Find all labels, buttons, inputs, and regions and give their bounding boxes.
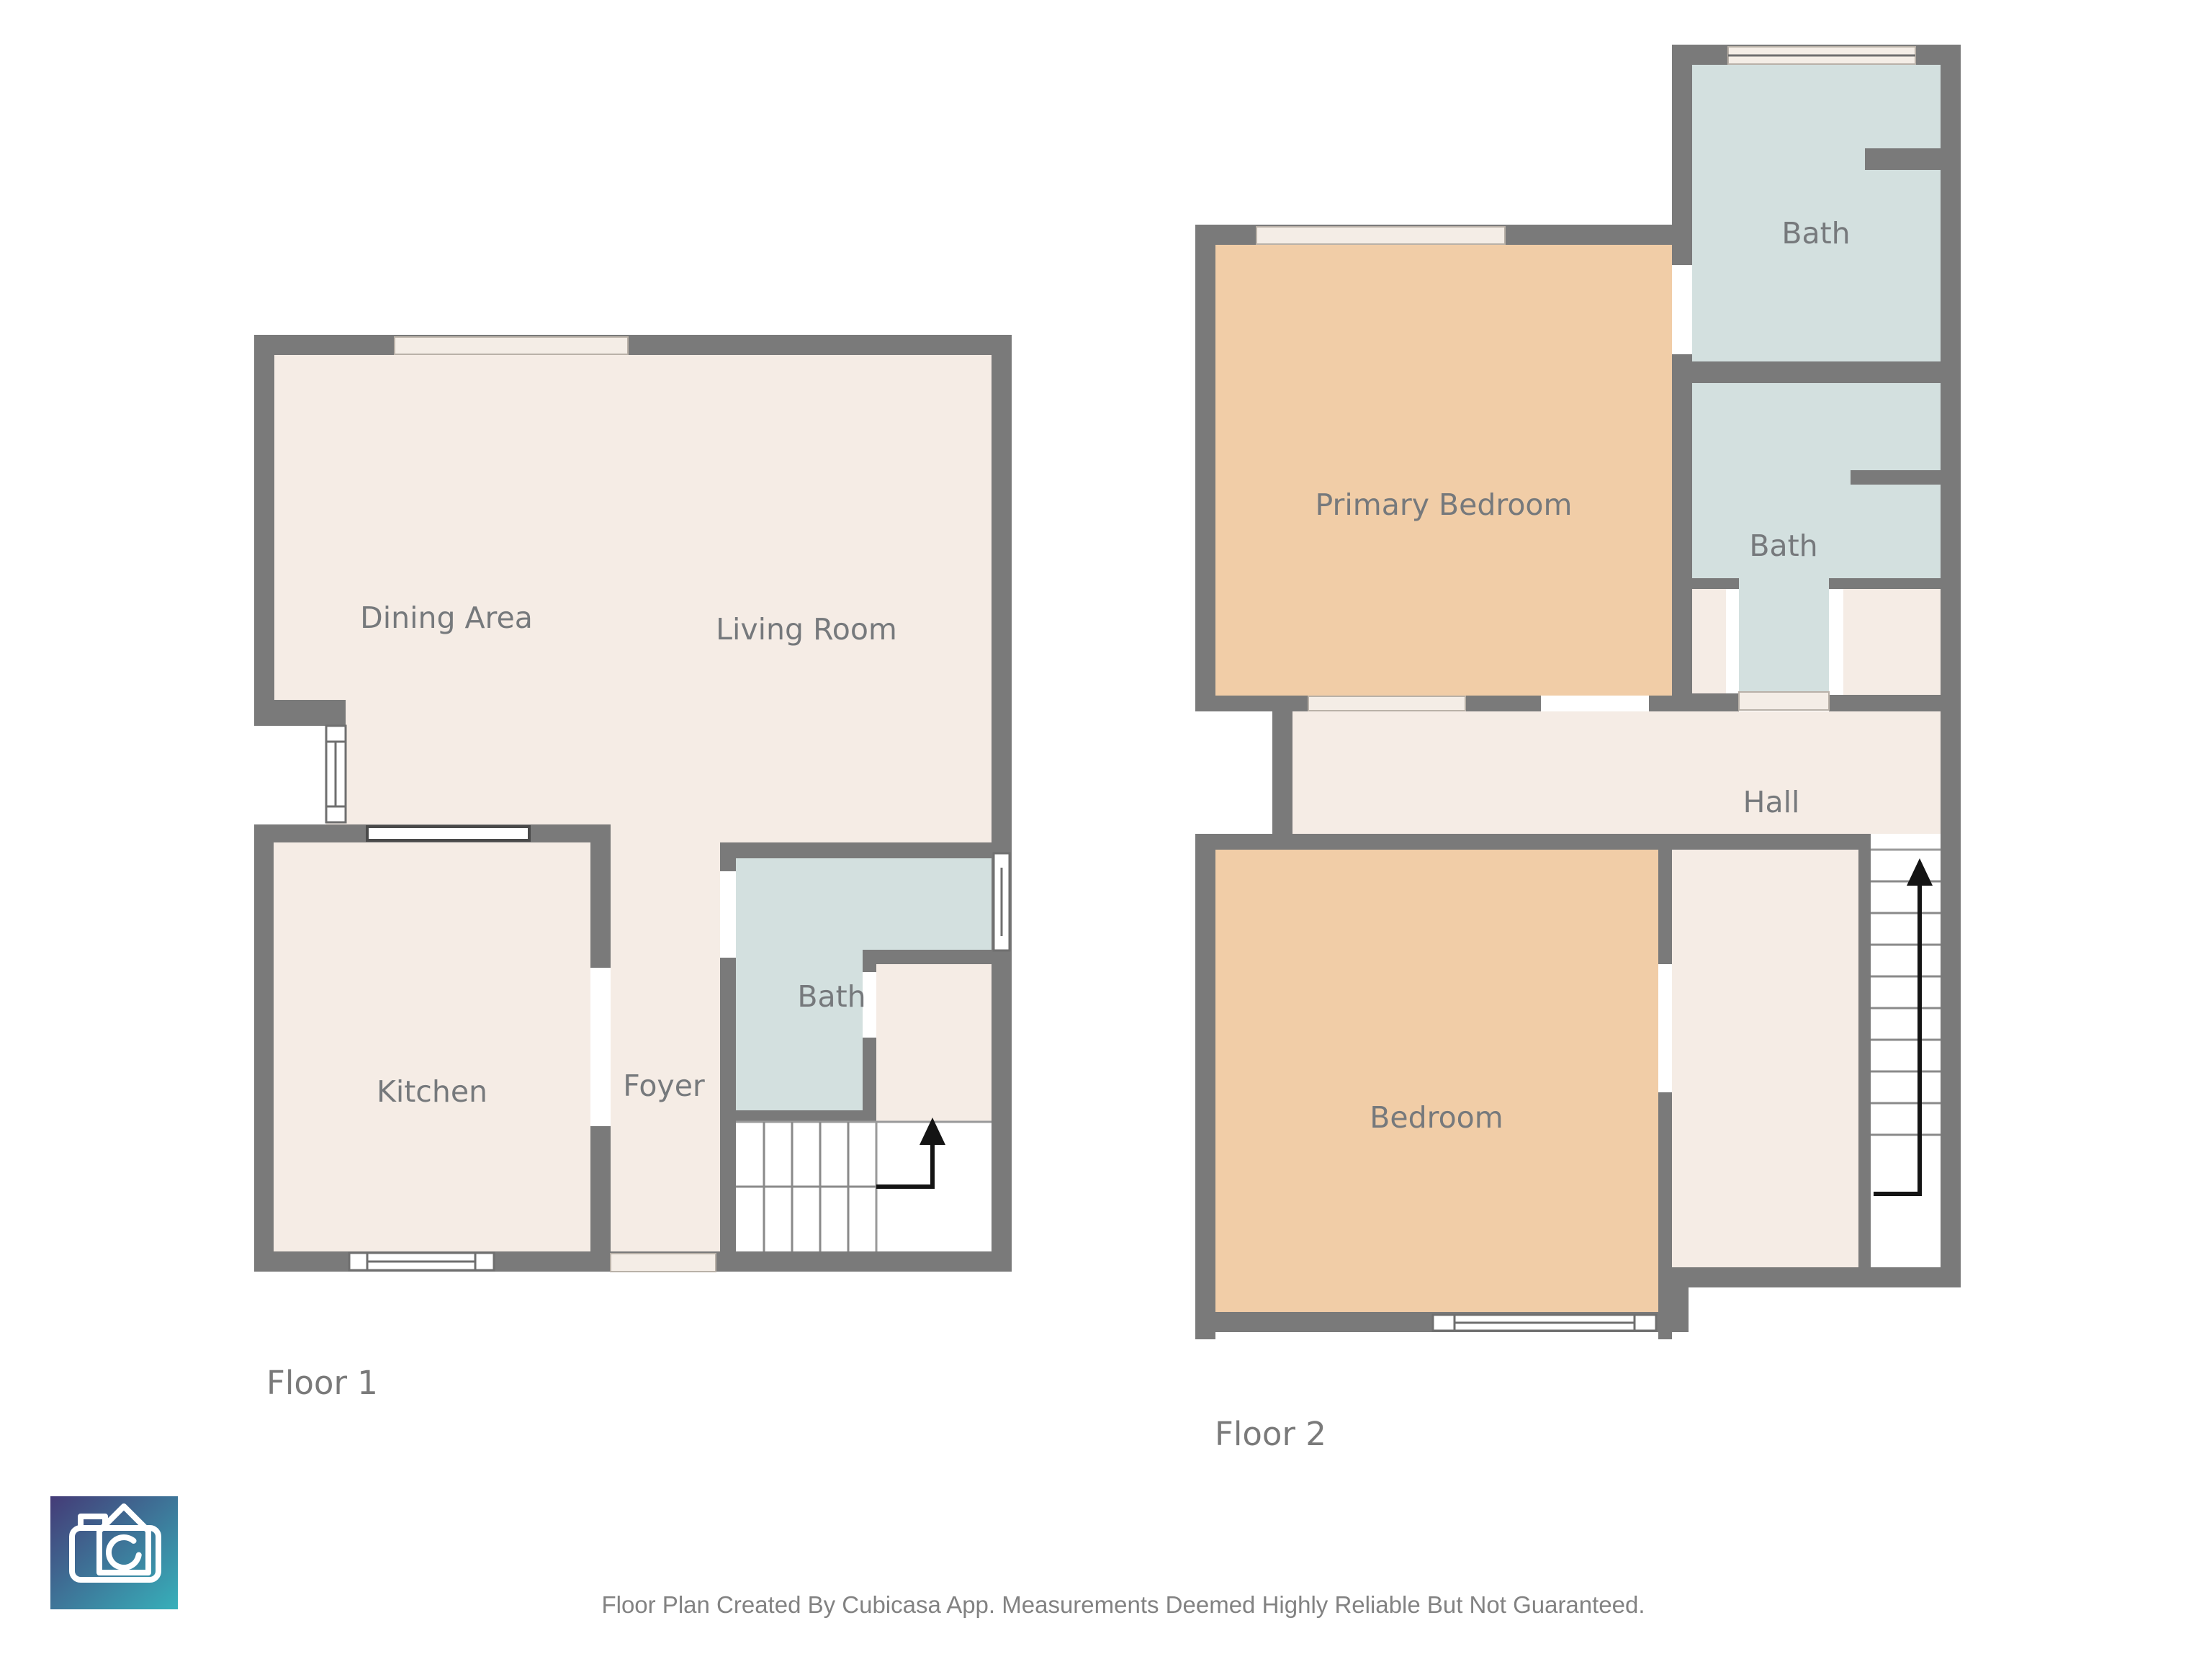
room-bath-f2-corridor	[1739, 578, 1829, 693]
label-kitchen: Kitchen	[377, 1074, 487, 1109]
label-bedroom: Bedroom	[1370, 1100, 1503, 1135]
stairs-floor1	[736, 1118, 992, 1251]
door-closet-left-f2	[1726, 589, 1739, 691]
floorplan-canvas: Dining Area Living Room Kitchen Foyer Ba…	[0, 0, 2212, 1659]
room-foyer	[611, 824, 720, 1251]
floor1-plan: Dining Area Living Room Kitchen Foyer Ba…	[254, 335, 1012, 1402]
door-slab-bath-hall	[1739, 692, 1829, 710]
door-closet-right-f2	[1830, 589, 1843, 691]
label-bath-lower: Bath	[1749, 529, 1817, 563]
window-bedroom-bottom	[1433, 1315, 1656, 1331]
door-primary-bath-upper	[1672, 265, 1692, 354]
window-kitchen-bottom	[349, 1253, 494, 1270]
cubicasa-logo	[50, 1496, 178, 1609]
room-bedroom	[1215, 850, 1658, 1312]
room-kitchen	[274, 842, 590, 1251]
room-primary-bedroom	[1215, 245, 1672, 696]
window-bath-right-f1	[994, 853, 1010, 950]
floor1-title: Floor 1	[266, 1364, 378, 1402]
window-kitchen-top	[367, 827, 529, 840]
window-primary-top	[1256, 227, 1505, 244]
door-bedroom-landing	[1658, 964, 1672, 1092]
room-closet-f1	[876, 964, 992, 1122]
exterior-notch-f1	[254, 726, 326, 824]
stairs-floor2	[1871, 850, 1941, 1267]
room-closet-left-f2	[1692, 589, 1726, 693]
door-primary-hall	[1541, 696, 1649, 711]
label-bath-upper: Bath	[1781, 216, 1850, 251]
window-dining-left	[326, 726, 346, 822]
room-closet-right-f2	[1843, 589, 1941, 695]
label-foyer: Foyer	[623, 1069, 705, 1103]
room-landing-f2	[1672, 850, 1858, 1267]
room-bath-f2-upper	[1692, 65, 1941, 361]
closet-opening-primary	[1308, 696, 1465, 711]
footer-disclaimer: Floor Plan Created By Cubicasa App. Meas…	[601, 1591, 1645, 1618]
label-primary-bedroom: Primary Bedroom	[1316, 487, 1573, 522]
floor2-title: Floor 2	[1215, 1415, 1326, 1453]
room-hall	[1292, 711, 1941, 834]
label-living-room: Living Room	[716, 612, 897, 647]
floor2-plan: Primary Bedroom Bath Bath Hall Bedroom F…	[1195, 45, 1961, 1453]
window-living-top	[395, 337, 628, 354]
room-dining-living	[274, 355, 992, 842]
floorplan-page: Dining Area Living Room Kitchen Foyer Ba…	[0, 0, 2212, 1659]
window-bath-upper-top	[1728, 47, 1915, 64]
door-kitchen-foyer	[590, 968, 611, 1126]
entry-door-slab-f1	[611, 1254, 716, 1272]
label-bath-f1: Bath	[797, 979, 866, 1014]
label-hall: Hall	[1743, 785, 1800, 819]
door-foyer-bath-f1	[720, 871, 736, 958]
label-dining-area: Dining Area	[360, 601, 533, 635]
